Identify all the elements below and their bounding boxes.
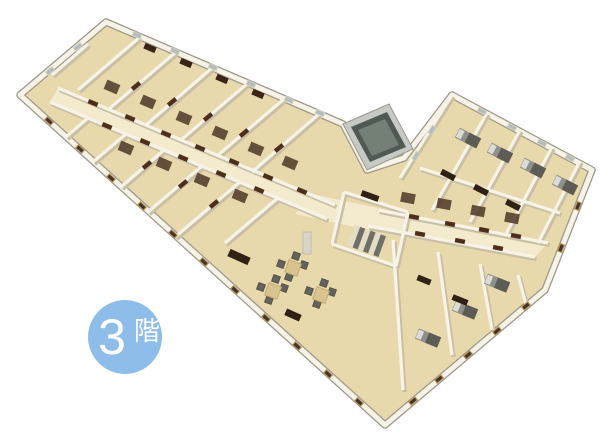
- column: [303, 232, 311, 254]
- floor-badge: 3 階: [88, 300, 162, 374]
- floor-badge-suffix: 階: [134, 316, 160, 346]
- floorplan-render-stage: 3 階: [0, 0, 600, 440]
- floorplan-3d-render: 3 階: [0, 0, 600, 440]
- floor-badge-number: 3: [98, 309, 126, 365]
